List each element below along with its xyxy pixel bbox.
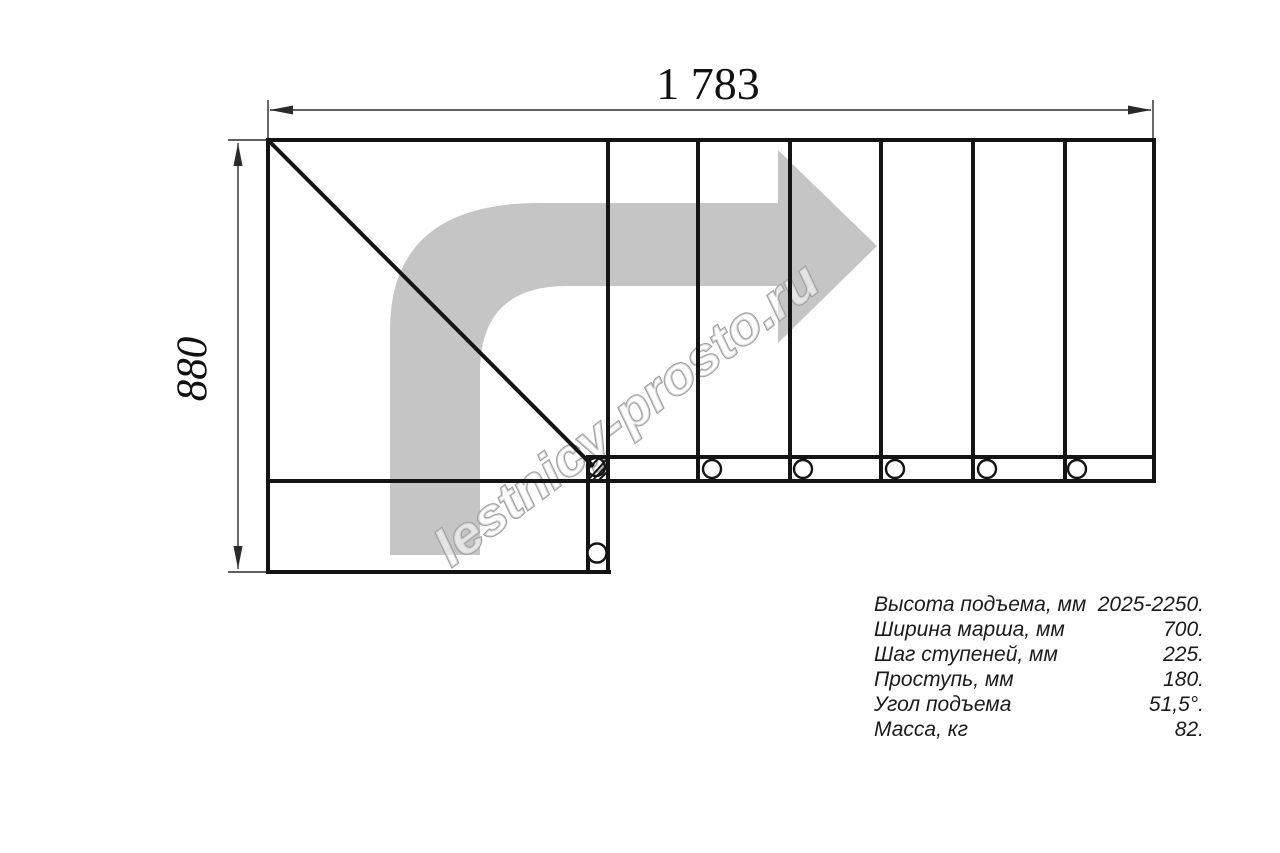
stringer-bolts — [587, 458, 1086, 563]
height-arrow-bottom-icon — [234, 546, 243, 569]
spec-row: Угол подъема51,5°. — [874, 692, 1204, 717]
specs-table: Высота подъема, мм2025-2250.Ширина марша… — [874, 592, 1204, 742]
spec-value: 225. — [1058, 642, 1204, 667]
spec-row: Масса, кг82. — [874, 717, 1204, 742]
spec-row: Шаг ступеней, мм225. — [874, 642, 1204, 667]
stringer-bolt — [794, 460, 812, 478]
stringer-bolt — [978, 460, 996, 478]
spec-value: 180. — [1014, 667, 1204, 692]
spec-row: Ширина марша, мм700. — [874, 617, 1204, 642]
spec-value: 82. — [968, 717, 1204, 742]
spec-value: 51,5°. — [1011, 692, 1204, 717]
spec-label: Угол подъема — [874, 692, 1011, 717]
spec-label: Проступь, мм — [874, 667, 1014, 692]
height-arrow-top-icon — [234, 143, 243, 166]
stringer-bolt — [703, 460, 721, 478]
spec-label: Масса, кг — [874, 717, 968, 742]
spec-label: Шаг ступеней, мм — [874, 642, 1058, 667]
direction-arrow-icon — [390, 150, 877, 555]
stringer-bolt — [886, 460, 904, 478]
height-dimension-label: 880 — [169, 337, 216, 402]
stair-plan-screenshot: lestnicy-prosto.ru — [0, 0, 1280, 853]
stringer-bolt — [1068, 460, 1086, 478]
spec-label: Ширина марша, мм — [874, 617, 1065, 642]
spec-label: Высота подъема, мм — [874, 592, 1086, 617]
spec-row: Высота подъема, мм2025-2250. — [874, 592, 1204, 617]
lower-flight-bolt — [588, 544, 607, 563]
spec-value: 2025-2250. — [1086, 592, 1204, 617]
spec-row: Проступь, мм180. — [874, 667, 1204, 692]
spec-value: 700. — [1065, 617, 1204, 642]
width-arrow-left-icon — [270, 106, 293, 115]
width-dimension-label: 1 783 — [656, 58, 760, 109]
width-arrow-right-icon — [1128, 106, 1151, 115]
